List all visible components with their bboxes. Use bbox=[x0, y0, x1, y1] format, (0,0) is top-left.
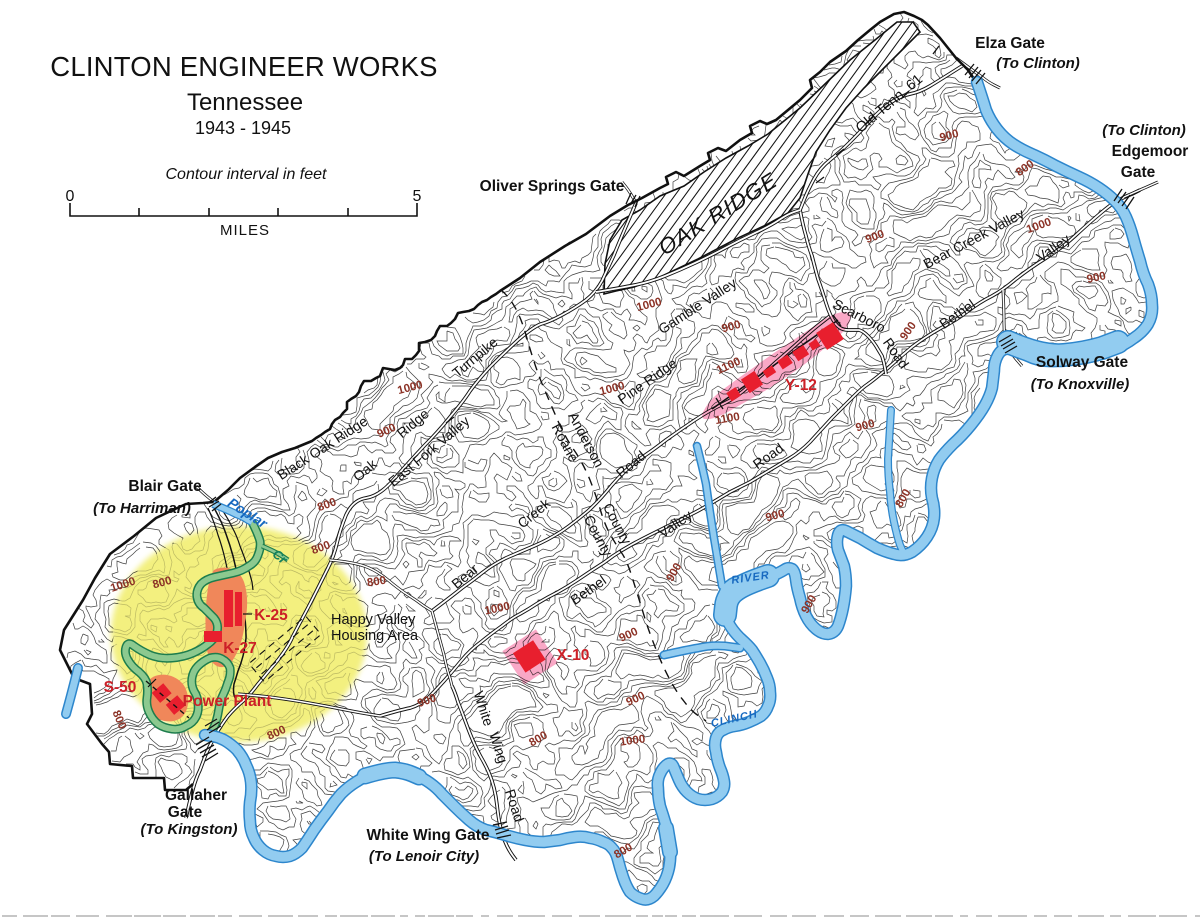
svg-text:(To Kingston): (To Kingston) bbox=[141, 821, 238, 838]
svg-text:Contour interval in feet: Contour interval in feet bbox=[166, 166, 328, 183]
svg-text:Gate: Gate bbox=[168, 804, 203, 821]
svg-text:(To Lenoir City): (To Lenoir City) bbox=[369, 848, 479, 865]
svg-text:(To Harriman): (To Harriman) bbox=[93, 500, 191, 517]
svg-text:Edgemoor: Edgemoor bbox=[1112, 143, 1189, 160]
svg-text:Power Plant: Power Plant bbox=[183, 693, 272, 710]
svg-text:Y-12: Y-12 bbox=[785, 377, 817, 394]
svg-text:K-25: K-25 bbox=[254, 607, 288, 624]
svg-text:(To Knoxville): (To Knoxville) bbox=[1031, 376, 1130, 393]
svg-text:1943 - 1945: 1943 - 1945 bbox=[195, 118, 291, 138]
svg-text:White Wing Gate: White Wing Gate bbox=[367, 827, 490, 844]
svg-text:Gallaher: Gallaher bbox=[165, 787, 227, 804]
svg-text:S-50: S-50 bbox=[104, 679, 137, 696]
svg-text:(To Clinton): (To Clinton) bbox=[1102, 122, 1186, 139]
svg-text:Housing Area: Housing Area bbox=[331, 628, 419, 644]
svg-text:MILES: MILES bbox=[220, 222, 270, 239]
svg-text:Solway Gate: Solway Gate bbox=[1036, 354, 1129, 371]
svg-text:Blair Gate: Blair Gate bbox=[128, 478, 202, 495]
svg-text:Oliver Springs Gate: Oliver Springs Gate bbox=[480, 178, 625, 195]
svg-text:(To Clinton): (To Clinton) bbox=[996, 55, 1080, 72]
svg-text:Tennessee: Tennessee bbox=[187, 89, 303, 116]
svg-text:0: 0 bbox=[66, 188, 75, 205]
svg-text:Elza Gate: Elza Gate bbox=[975, 35, 1045, 52]
svg-text:X-10: X-10 bbox=[557, 647, 590, 664]
svg-text:CLINTON ENGINEER WORKS: CLINTON ENGINEER WORKS bbox=[50, 51, 437, 82]
svg-text:K-27: K-27 bbox=[223, 640, 257, 657]
svg-text:Happy Valley: Happy Valley bbox=[331, 612, 416, 628]
svg-text:Gate: Gate bbox=[1121, 164, 1156, 181]
svg-text:5: 5 bbox=[413, 188, 422, 205]
